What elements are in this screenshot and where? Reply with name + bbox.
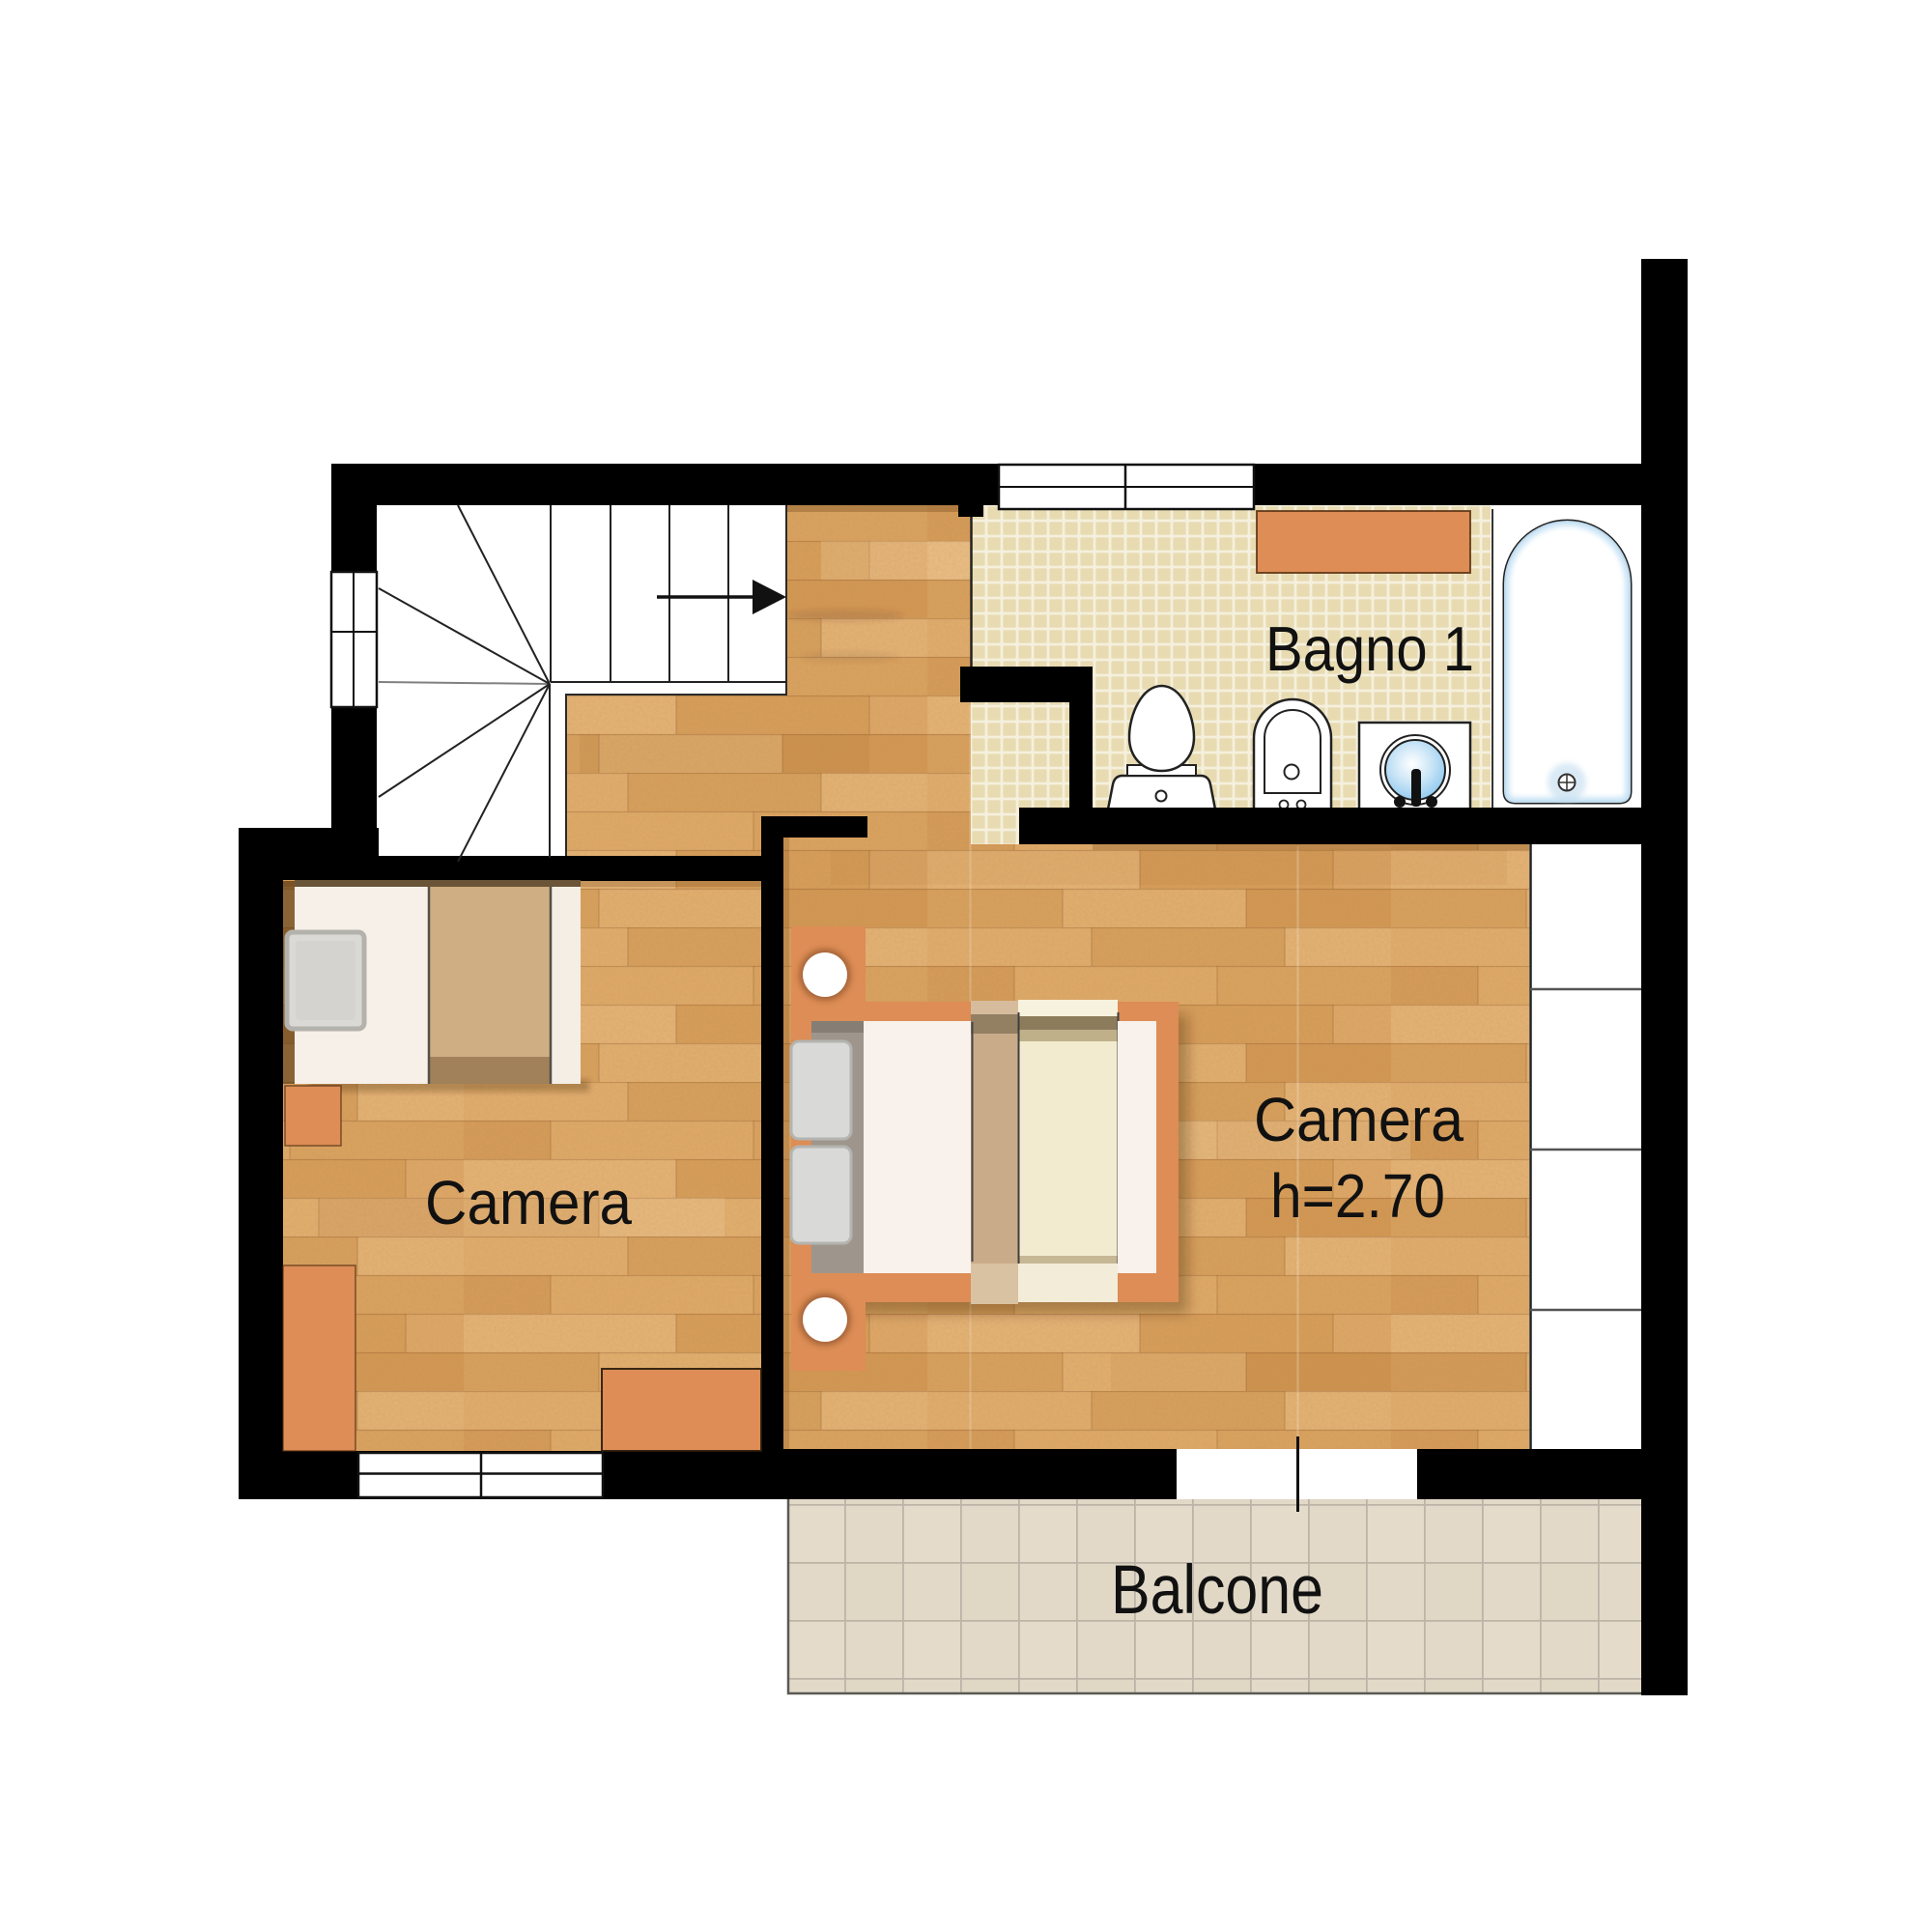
svg-text:h=2.70: h=2.70 xyxy=(1270,1161,1445,1231)
svg-text:Camera: Camera xyxy=(425,1168,632,1237)
svg-text:Camera: Camera xyxy=(1254,1085,1463,1154)
svg-text:Balcone: Balcone xyxy=(1111,1552,1323,1629)
svg-text:Bagno 1: Bagno 1 xyxy=(1265,613,1474,684)
